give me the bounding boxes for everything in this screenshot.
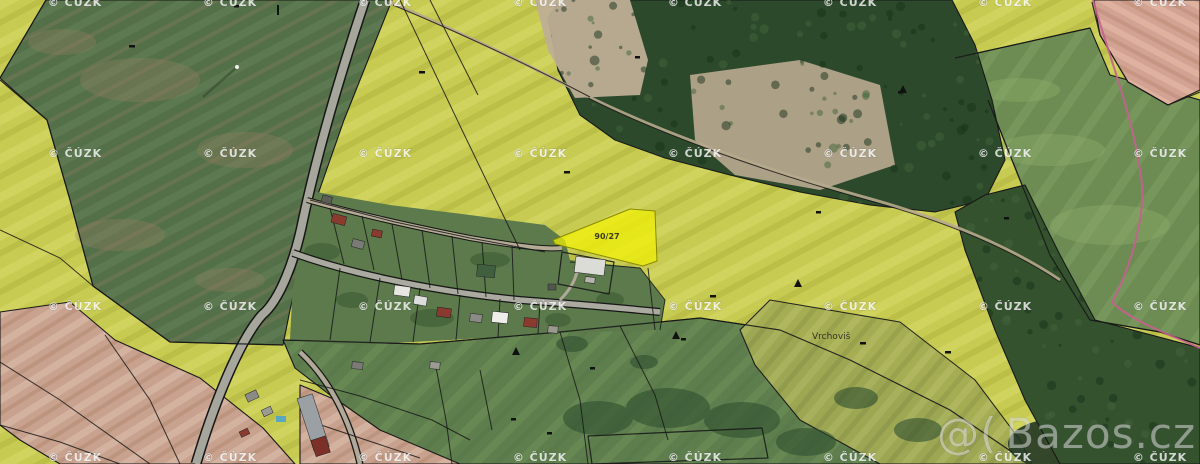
cuzk-watermark: © ČÚZK xyxy=(513,147,567,160)
cuzk-watermark: © ČÚZK xyxy=(358,0,412,9)
cuzk-watermark: © ČÚZK xyxy=(203,300,257,313)
cuzk-watermark: © ČÚZK xyxy=(48,0,102,9)
place-label: Vrchoviš xyxy=(812,331,851,342)
cuzk-watermark: © ČÚZK xyxy=(358,300,412,313)
cuzk-watermark: © ČÚZK xyxy=(668,451,722,464)
cuzk-watermark: © ČÚZK xyxy=(1133,300,1187,313)
cuzk-watermark: © ČÚZK xyxy=(203,147,257,160)
cuzk-watermark: © ČÚZK xyxy=(48,147,102,160)
cuzk-watermark: © ČÚZK xyxy=(203,0,257,9)
cuzk-watermark: © ČÚZK xyxy=(823,147,877,160)
cuzk-watermark: © ČÚZK xyxy=(1133,147,1187,160)
cuzk-watermark: © ČÚZK xyxy=(823,0,877,9)
bazos-watermark: @(Bazos.cz xyxy=(937,409,1196,458)
cuzk-watermark: © ČÚZK xyxy=(358,147,412,160)
cuzk-watermark: © ČÚZK xyxy=(513,451,567,464)
cuzk-watermark: © ČÚZK xyxy=(48,451,102,464)
bazos-logo-glyph: @( xyxy=(937,409,997,458)
cuzk-watermark: © ČÚZK xyxy=(48,300,102,313)
cuzk-watermark: © ČÚZK xyxy=(203,451,257,464)
cuzk-watermark: © ČÚZK xyxy=(668,147,722,160)
cuzk-watermark: © ČÚZK xyxy=(823,451,877,464)
mast xyxy=(235,65,239,69)
cuzk-watermark: © ČÚZK xyxy=(1133,0,1187,9)
cuzk-watermark: © ČÚZK xyxy=(978,147,1032,160)
cuzk-watermark: © ČÚZK xyxy=(823,300,877,313)
cuzk-watermark: © ČÚZK xyxy=(668,300,722,313)
cuzk-watermark: © ČÚZK xyxy=(978,300,1032,313)
map-canvas[interactable]: 90/27 Vrchoviš © ČÚZK© ČÚZK© ČÚZK© ČÚZK©… xyxy=(0,0,1200,464)
cuzk-watermark: © ČÚZK xyxy=(513,300,567,313)
cuzk-watermark: © ČÚZK xyxy=(978,0,1032,9)
parcel-number-label: 90/27 xyxy=(594,232,619,241)
cuzk-watermark: © ČÚZK xyxy=(358,451,412,464)
cuzk-watermark: © ČÚZK xyxy=(513,0,567,9)
cuzk-watermark: © ČÚZK xyxy=(668,0,722,9)
